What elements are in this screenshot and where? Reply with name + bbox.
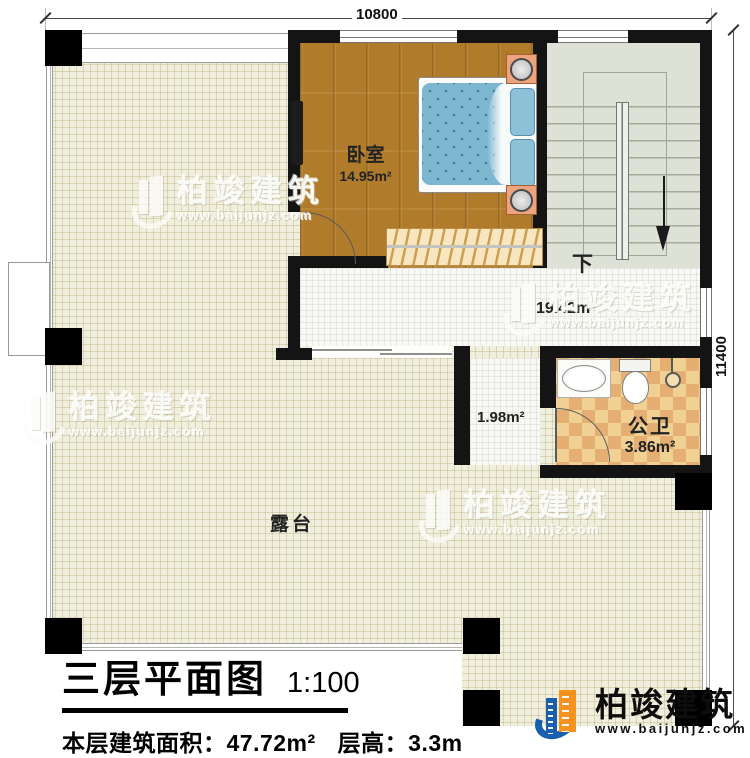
bedroom-area: 14.95m² [318,168,413,184]
stair-arrow-stem [663,176,665,228]
dimension-right-value: 11400 [713,330,730,383]
hallway-area: 19.42m² [536,300,596,318]
bedroom-name: 卧室 [318,140,413,167]
bathroom-label-group: 公卫 3.86m² [598,410,702,457]
bathroom-counter [557,359,611,398]
column-ext-top-right [675,473,712,510]
brand-logo: 柏竣建筑 www.baijunjz.com [533,688,747,746]
hallway-right-window [700,288,712,337]
column-ext-bottom-left [463,690,500,726]
terrace-top-railing [82,33,288,63]
dimension-line-right [733,30,734,726]
shower-hose [671,358,673,373]
bed [418,77,537,193]
sink-icon [562,365,606,392]
sliding-door-leaf-2 [380,353,452,355]
wardrobe [386,228,543,266]
stairs-down-label: 下 [572,248,593,278]
wardrobe-rail [387,245,542,248]
bed-pillow-2 [510,139,535,187]
wall-top-3 [628,30,712,43]
tv [291,101,303,165]
wall-top-2 [457,30,558,43]
dimension-top-value: 10800 [352,6,402,23]
terrace-extension-right-railing [702,510,710,690]
column-ext-top-left [463,618,500,654]
shower-head-icon [665,372,681,388]
corridor-area: 1.98m² [477,409,525,426]
brand-name: 柏竣建筑 [595,688,747,721]
drawing-scale: 1:100 [287,667,360,700]
bedroom-window [340,30,457,43]
floor-area-text: 本层建筑面积：47.72m² [62,724,316,758]
nightstand-top [506,54,537,84]
column-mid-left [45,328,82,365]
hallway-floor [300,268,700,346]
terrace-label: 露台 [270,509,314,536]
wall-hallway-left [288,264,300,360]
lamp-icon [510,58,533,81]
wall-right-mid [700,337,712,388]
column-top-left [45,30,82,66]
wall-corridor-left [454,346,470,465]
bed-pillow-1 [510,88,535,136]
stair-arrow-head [656,226,670,251]
bedroom-label-group: 卧室 14.95m² [318,140,413,184]
terrace-side-platform [8,262,50,356]
bathroom-name: 公卫 [598,410,702,439]
title-block: 三层平面图 1:100 本层建筑面积：47.72m² 层高：3.3m [62,648,463,758]
hallway-sliding-door [312,346,452,358]
lamp-icon [510,189,533,212]
stairwell-window [558,30,628,43]
brand-logo-icon [533,688,589,746]
toilet-bowl [622,371,649,404]
sliding-door-leaf-1 [312,349,392,351]
nightstand-bottom [506,185,537,215]
brand-url: www.baijunjz.com [595,722,747,735]
drawing-title: 三层平面图 [62,648,267,703]
floor-plan-canvas: 卧室 14.95m² 19.42m² 1.98m² 公卫 3.86m² 露台 下… [0,0,750,758]
bathroom-door-leaf [555,408,557,462]
logo-building-orange [559,690,576,732]
wall-right-upper [700,43,712,288]
logo-building-blue [546,698,557,734]
stair-center-rail [616,102,629,260]
wall-bathroom-top [540,346,712,358]
wall-top-1 [288,30,340,43]
title-underline [62,708,348,713]
wall-hallway-bottom-stub [276,348,312,360]
floor-height-text: 层高：3.3m [338,724,463,758]
bathroom-area: 3.86m² [598,439,702,457]
